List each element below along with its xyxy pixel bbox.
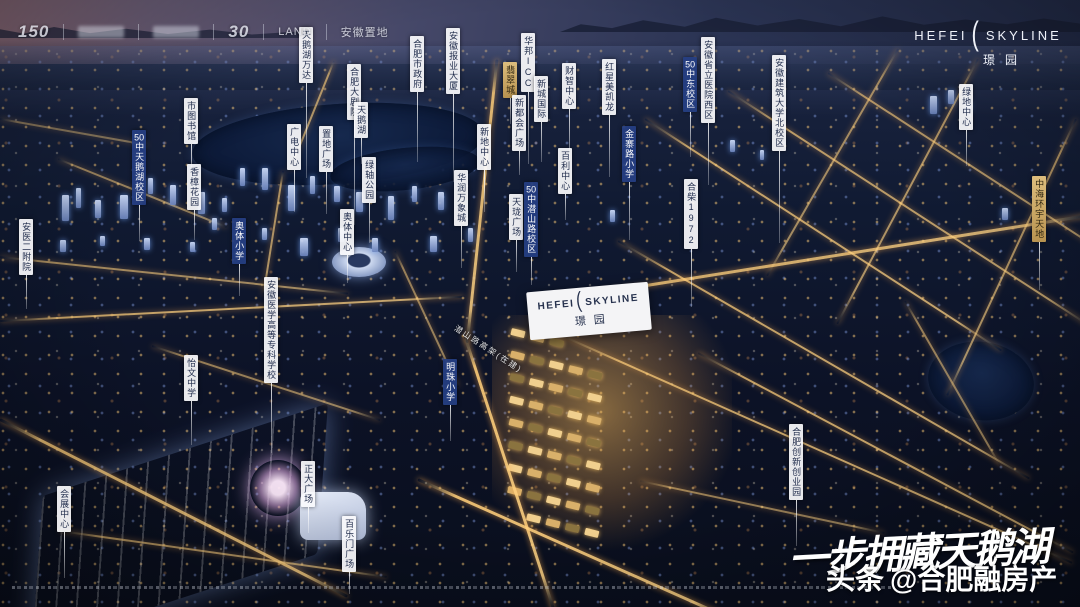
lit-tower-block <box>262 228 267 240</box>
lit-tower-block <box>144 238 150 250</box>
anniversary-30-logo: 30 <box>228 22 249 42</box>
crescent-moon-icon: ( <box>575 289 584 315</box>
map-label: 新地中心 <box>477 124 491 170</box>
label-leader-line <box>450 405 451 441</box>
lit-tower-block <box>120 195 128 219</box>
map-label: 50中潜山路校区 <box>524 182 538 257</box>
map-label: 广电中心 <box>287 124 301 170</box>
map-label: 中海环宇天地 <box>1032 176 1046 242</box>
lit-tower-block <box>760 150 764 160</box>
label-leader-line <box>779 151 780 243</box>
site-building-block <box>566 455 581 465</box>
site-building-block <box>545 518 560 528</box>
lit-tower-block <box>310 176 315 194</box>
site-building-block <box>587 415 602 425</box>
site-building-block <box>586 460 601 470</box>
site-building-block <box>547 450 562 460</box>
label-number: 50 <box>526 185 536 194</box>
label-leader-line <box>306 83 307 178</box>
map-label: 会展中心 <box>57 486 71 532</box>
brand-wordmark-en: HEFEI ( SKYLINE <box>902 24 1074 47</box>
wordmark-right: SKYLINE <box>986 28 1062 43</box>
map-label: 奥体小学 <box>232 218 246 264</box>
label-leader-line <box>26 275 27 309</box>
site-building-block <box>567 410 582 420</box>
map-label: 合肥市政府 <box>410 36 424 92</box>
map-label: 华邦ICC <box>521 33 535 92</box>
site-building-block <box>568 365 583 375</box>
poster-canvas: 天鹅湖万达合肥大剧院合肥市政府安徽报业大厦华邦ICC翡翠城新城国际新都会广场百利… <box>0 0 1080 607</box>
site-building-block <box>567 433 582 443</box>
map-label: 新城国际 <box>534 76 548 122</box>
label-leader-line <box>510 98 511 124</box>
label-leader-line <box>516 240 517 272</box>
site-building-block <box>546 473 561 483</box>
lit-tower-block <box>95 200 101 218</box>
lit-tower-block <box>222 198 227 212</box>
site-building-block <box>526 513 541 523</box>
site-building-block <box>587 392 602 402</box>
site-building-block <box>585 483 600 493</box>
site-building-block <box>528 423 543 433</box>
lit-tower-block <box>334 186 340 202</box>
logo-separator <box>326 24 327 40</box>
land-group-logo: LAND <box>278 26 311 38</box>
label-leader-line <box>565 194 566 220</box>
label-number: 50 <box>685 60 695 69</box>
map-label: 50中天鹅湖校区 <box>132 130 146 205</box>
label-leader-line <box>294 170 295 212</box>
round-emblem-logo <box>78 26 124 38</box>
map-label: 华润万象城 <box>454 170 468 226</box>
site-building-block <box>584 528 599 538</box>
lit-tower-block <box>930 96 937 114</box>
label-leader-line <box>519 151 520 175</box>
label-leader-line <box>609 115 610 177</box>
map-label: 50中东校区 <box>683 57 697 112</box>
label-leader-line <box>194 210 195 240</box>
crescent-moon-icon: ( <box>972 15 982 54</box>
map-label: 怡文中学 <box>184 355 198 401</box>
wordmark-left: HEFEI <box>914 28 967 43</box>
logo-separator <box>263 24 264 40</box>
map-label: 奥体中心 <box>340 209 354 255</box>
lit-tower-block <box>100 236 105 246</box>
label-leader-line <box>691 249 692 307</box>
map-label: 安徽报业大厦 <box>446 28 460 94</box>
map-label: 正大广场 <box>301 461 315 507</box>
lit-tower-block <box>1002 208 1008 220</box>
lit-tower-block <box>212 218 217 230</box>
map-label: 香樟花园 <box>187 164 201 210</box>
lit-tower-block <box>372 238 378 252</box>
label-leader-line <box>690 112 691 157</box>
lit-tower-block <box>262 168 268 190</box>
label-leader-line <box>541 122 542 162</box>
site-building-block <box>529 355 544 365</box>
lit-tower-block <box>300 238 308 256</box>
lit-tower-block <box>190 242 195 252</box>
map-label: 合肥创新创业园 <box>789 424 803 500</box>
label-leader-line <box>708 123 709 185</box>
plaque-en: HEFEI ( SKYLINE <box>537 290 640 315</box>
label-leader-line <box>461 226 462 268</box>
site-building-block <box>547 428 562 438</box>
label-leader-line <box>361 138 362 164</box>
site-building-block <box>548 405 563 415</box>
site-building-block <box>546 496 561 506</box>
map-label: 绿轴公园 <box>362 157 376 203</box>
site-building-block <box>565 523 580 533</box>
map-label: 置地广场 <box>319 126 333 172</box>
label-leader-line <box>349 572 350 594</box>
map-label: 金寨路小学 <box>622 126 636 182</box>
toutiao-logo: 头条 <box>826 556 884 598</box>
brand-wordmark-cn: 璟园 <box>936 51 1074 68</box>
toutiao-watermark: 头条 @合肥融房产 <box>826 556 1057 598</box>
lit-tower-block <box>948 90 954 104</box>
lit-tower-block <box>170 185 176 205</box>
partner-logo-row: 15030LAND安徽置地 <box>18 22 389 42</box>
label-leader-line <box>629 182 630 240</box>
label-leader-line <box>271 383 272 453</box>
site-building-block <box>529 378 544 388</box>
site-building-block <box>527 468 542 478</box>
anniversary-150-logo: 150 <box>18 22 49 42</box>
label-leader-line <box>326 172 327 214</box>
map-label: 安徽省立医院西区 <box>701 37 715 123</box>
site-building-block <box>526 491 541 501</box>
label-leader-line <box>966 130 967 166</box>
map-label: 市图书馆 <box>184 98 198 144</box>
label-leader-line <box>569 109 570 161</box>
label-leader-line <box>417 92 418 162</box>
lit-tower-block <box>240 168 245 186</box>
label-leader-line <box>1039 242 1040 290</box>
lit-tower-block <box>610 210 615 222</box>
developer-wordmark-logo <box>153 26 199 38</box>
anhui-zhidi-logo: 安徽置地 <box>341 24 389 40</box>
lit-tower-block <box>388 196 394 220</box>
label-number: 50 <box>134 133 144 142</box>
map-label: 安徽建筑大学北校区 <box>772 55 786 151</box>
logo-separator <box>63 24 64 40</box>
map-label: 红星美凯龙 <box>602 59 616 115</box>
map-label: 安徽医学高等专科学校 <box>264 277 278 383</box>
map-label: 财智中心 <box>562 63 576 109</box>
lit-tower-block <box>60 240 66 252</box>
label-leader-line <box>139 205 140 241</box>
lit-tower-block <box>730 140 735 152</box>
map-label: 天珑广场 <box>509 194 523 240</box>
lit-tower-block <box>438 192 444 210</box>
lit-blossom-structure <box>250 460 306 516</box>
lit-tower-block <box>412 186 417 202</box>
label-leader-line <box>191 401 192 445</box>
logo-separator <box>138 24 139 40</box>
map-label: 翡翠城 <box>503 62 517 98</box>
label-leader-line <box>453 94 454 182</box>
label-leader-line <box>308 507 309 533</box>
label-leader-line <box>347 255 348 283</box>
lit-tower-block <box>430 236 437 252</box>
site-building-block <box>565 500 580 510</box>
map-label: 绿地中心 <box>959 84 973 130</box>
label-leader-line <box>64 532 65 578</box>
map-label: 百乐门广场 <box>342 516 356 572</box>
site-building-block <box>549 360 564 370</box>
map-label: 明珠小学 <box>443 359 457 405</box>
site-building-block <box>508 418 523 428</box>
site-building-block <box>568 388 583 398</box>
site-building-block <box>528 401 543 411</box>
site-building-block <box>548 383 563 393</box>
label-leader-line <box>369 203 370 243</box>
watermark-handle: @合肥融房产 <box>890 558 1057 598</box>
site-building-block <box>527 446 542 456</box>
lit-tower-block <box>62 195 69 221</box>
fine-print-strip <box>12 584 892 592</box>
label-leader-line <box>531 257 532 285</box>
site-building-block <box>587 370 602 380</box>
map-label: 安医二附院 <box>19 219 33 275</box>
plaque-left: HEFEI <box>537 298 575 312</box>
label-leader-line <box>484 170 485 212</box>
site-building-block <box>585 505 600 515</box>
label-leader-line <box>528 92 529 164</box>
lit-tower-block <box>76 188 81 208</box>
map-label: 天鹅湖 <box>354 102 368 138</box>
lit-tower-block <box>148 178 153 194</box>
site-building-block <box>509 396 524 406</box>
label-leader-line <box>239 264 240 296</box>
map-label: 新都会广场 <box>512 95 526 151</box>
logo-separator <box>213 24 214 40</box>
site-building-block <box>566 478 581 488</box>
lit-tower-block <box>468 228 473 242</box>
site-building-block <box>508 441 523 451</box>
plaque-right: SKYLINE <box>585 292 640 308</box>
map-label: 合柴1972 <box>684 179 698 249</box>
brand-wordmark: HEFEI ( SKYLINE 璟园 <box>902 24 1074 68</box>
site-building-block <box>586 438 601 448</box>
